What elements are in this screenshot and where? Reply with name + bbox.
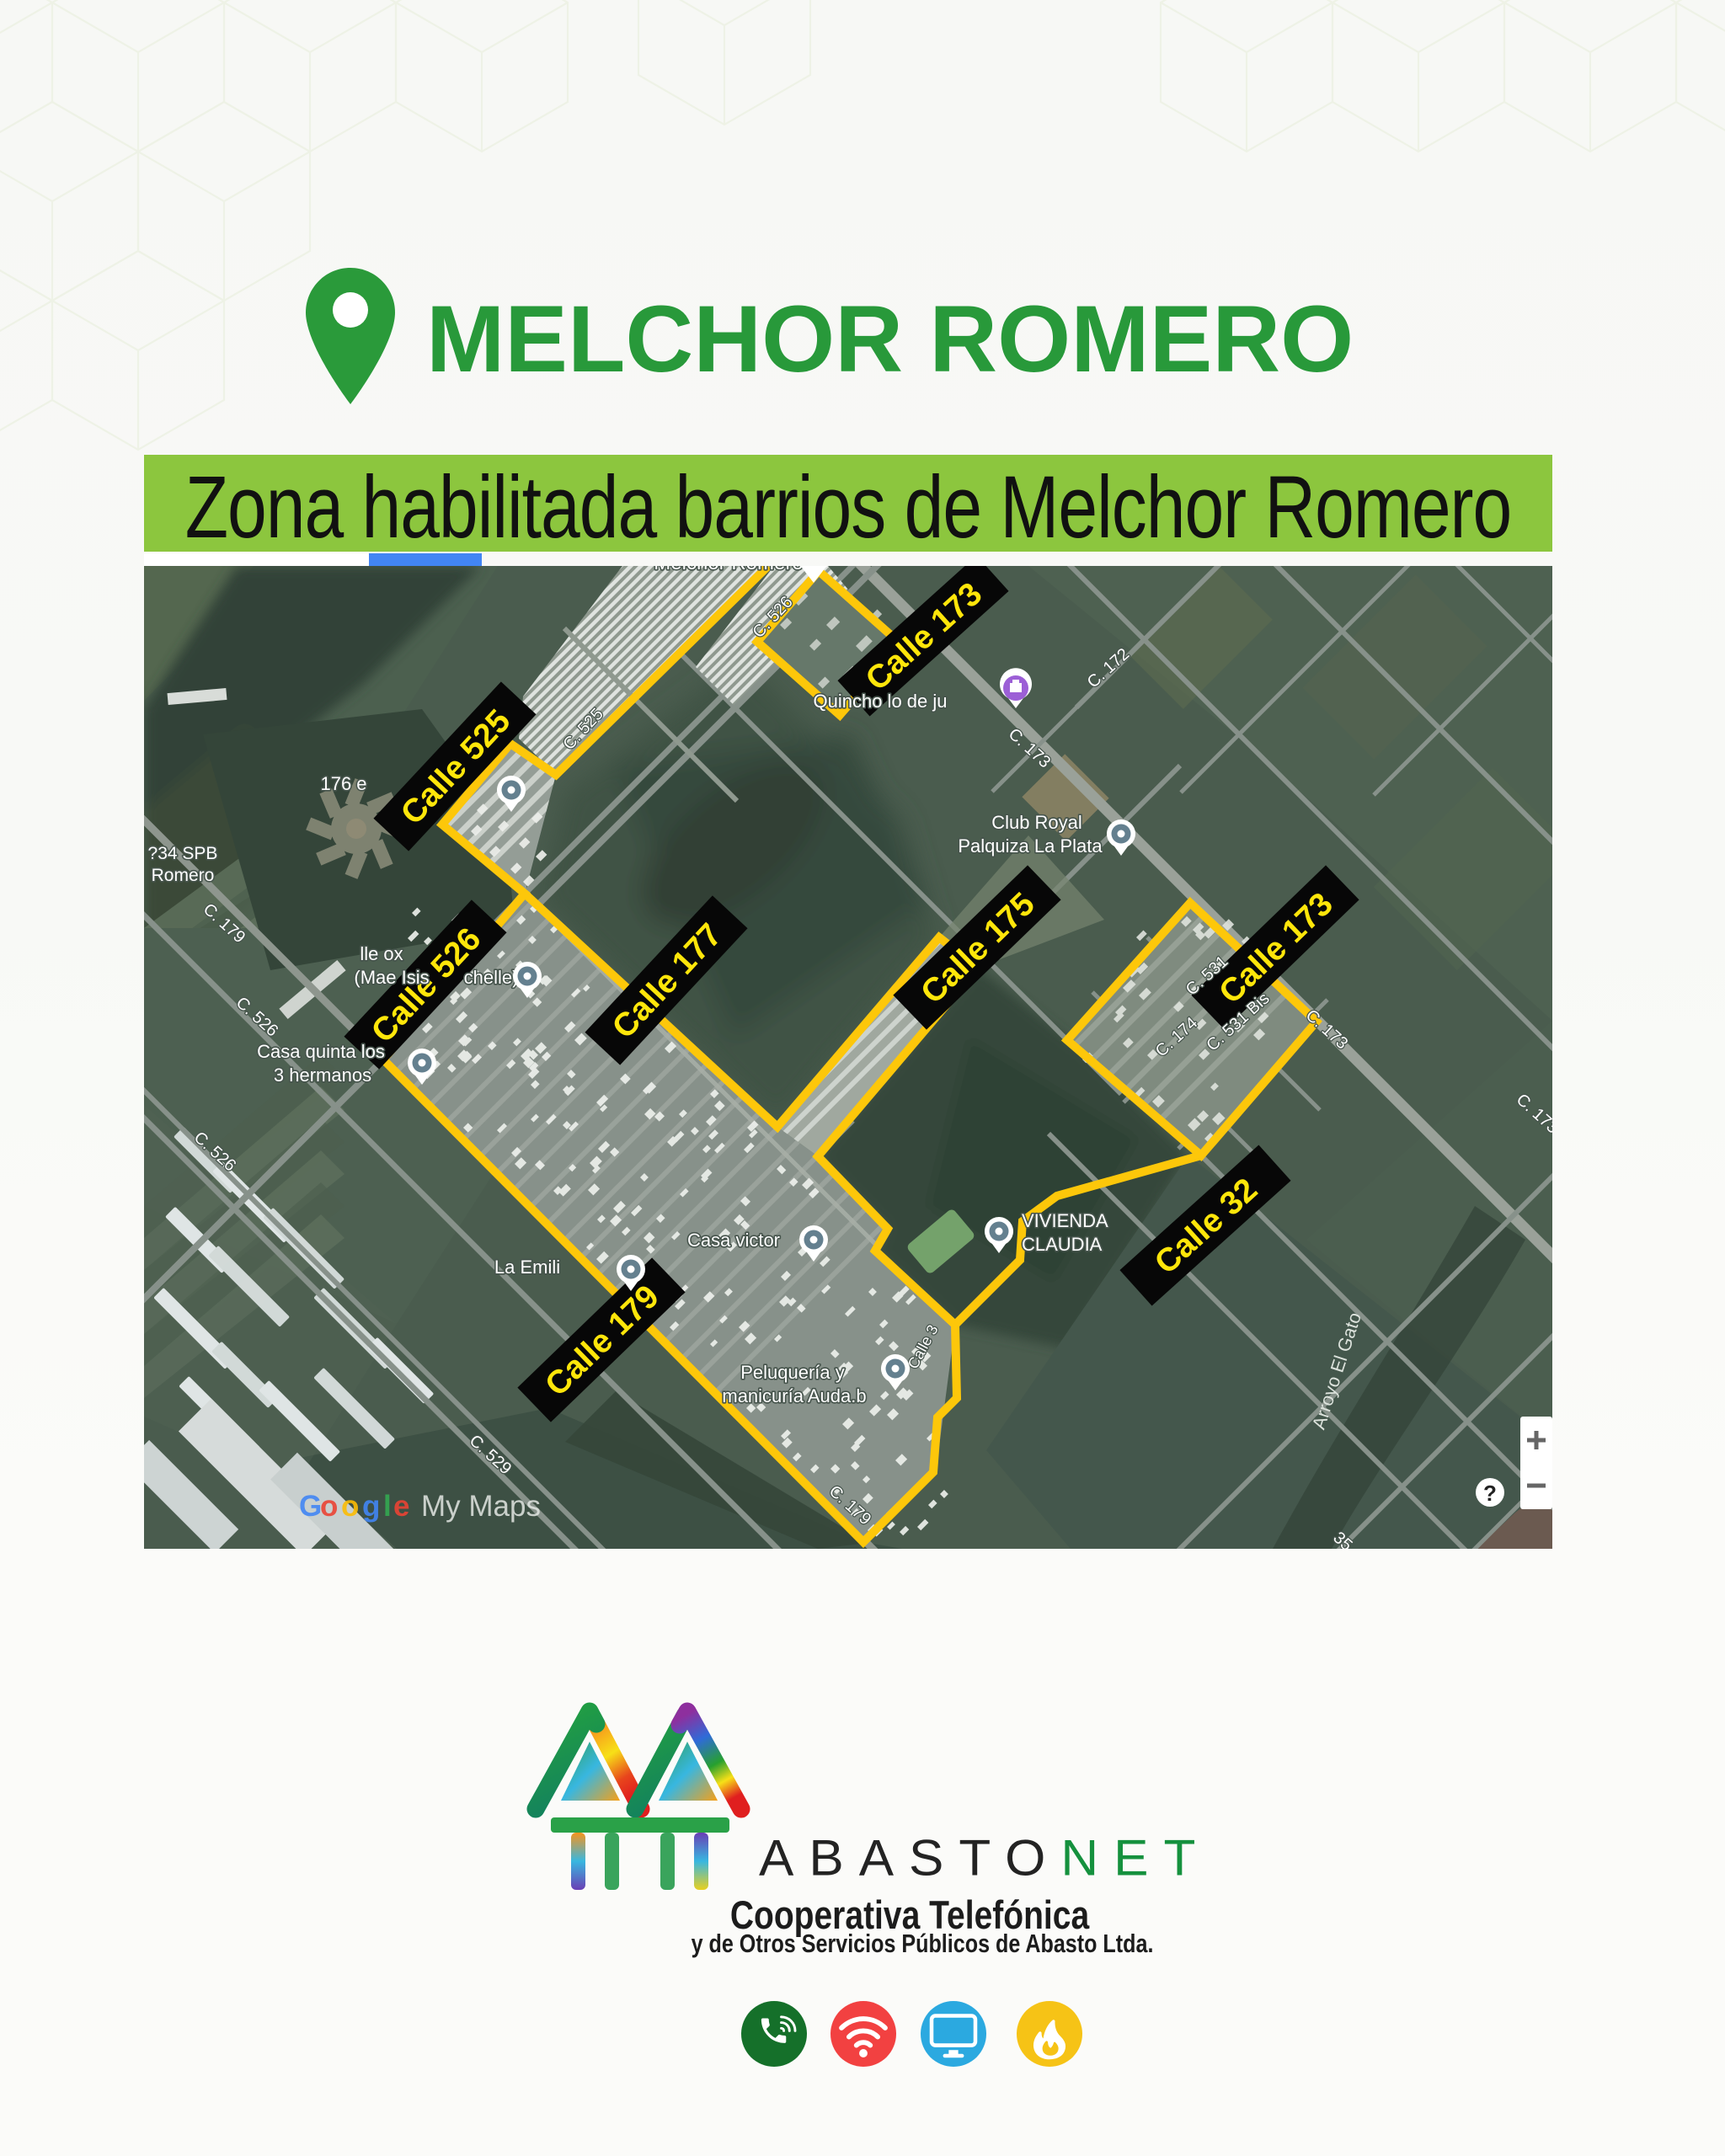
- svg-text:manicuría Auda.b: manicuría Auda.b: [722, 1385, 866, 1406]
- svg-text:VIVIENDA: VIVIENDA: [1022, 1210, 1108, 1231]
- svg-text:(Mae Isis: (Mae Isis: [354, 967, 429, 988]
- svg-text:Melchor Romero: Melchor Romero: [654, 566, 803, 574]
- svg-text:l: l: [383, 1490, 392, 1523]
- svg-text:My Maps: My Maps: [421, 1490, 541, 1523]
- svg-text:Romero: Romero: [152, 866, 215, 885]
- svg-text:g: g: [362, 1490, 380, 1523]
- svg-text:chelle): chelle): [464, 967, 519, 988]
- svg-text:?34 SPB: ?34 SPB: [148, 844, 218, 863]
- svg-text:CLAUDIA: CLAUDIA: [1022, 1234, 1103, 1255]
- svg-text:Club Royal: Club Royal: [991, 812, 1082, 833]
- svg-text:lle ox: lle ox: [360, 943, 403, 964]
- svg-text:Peluquería y: Peluquería y: [740, 1362, 845, 1383]
- svg-text:?: ?: [1483, 1481, 1497, 1506]
- svg-text:La Emili: La Emili: [494, 1257, 560, 1278]
- svg-text:176 e: 176 e: [320, 773, 366, 794]
- svg-text:Palquiza La Plata: Palquiza La Plata: [958, 835, 1103, 857]
- svg-text:Casa victor: Casa victor: [687, 1230, 780, 1251]
- svg-text:o: o: [341, 1490, 359, 1523]
- svg-text:e: e: [393, 1490, 409, 1523]
- svg-text:G: G: [299, 1490, 322, 1523]
- svg-text:o: o: [320, 1490, 338, 1523]
- svg-text:Casa quinta los: Casa quinta los: [257, 1041, 385, 1062]
- svg-text:Quincho lo de ju: Quincho lo de ju: [814, 691, 948, 712]
- svg-text:3 hermanos: 3 hermanos: [274, 1065, 371, 1086]
